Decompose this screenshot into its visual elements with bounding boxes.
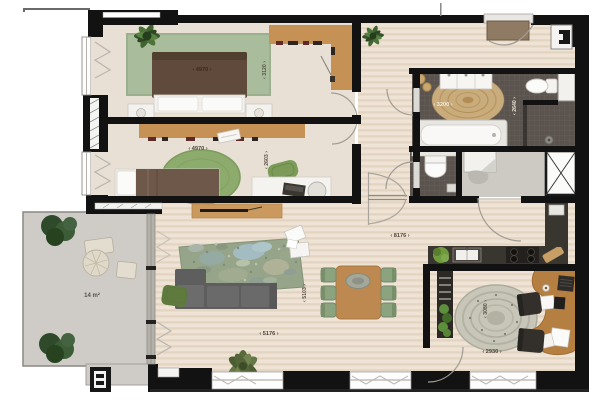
svg-text:14 m²: 14 m²: [84, 292, 100, 299]
svg-text:‹ 3120 ›: ‹ 3120 ›: [262, 61, 268, 79]
svg-text:‹ 5103 ›: ‹ 5103 ›: [302, 284, 308, 302]
svg-text:‹ 2640 ›: ‹ 2640 ›: [512, 97, 518, 115]
svg-text:‹ 4970 ›: ‹ 4970 ›: [192, 67, 211, 73]
svg-text:‹ 5176 ›: ‹ 5176 ›: [259, 331, 278, 337]
svg-text:‹ 8176 ›: ‹ 8176 ›: [390, 233, 409, 239]
svg-text:‹ 3200 ›: ‹ 3200 ›: [433, 102, 452, 108]
svg-text:‹ 2603 ›: ‹ 2603 ›: [264, 151, 270, 169]
svg-text:‹ 3080 ›: ‹ 3080 ›: [483, 300, 489, 318]
svg-text:‹ 4970 ›: ‹ 4970 ›: [188, 146, 207, 152]
svg-text:‹ 2930 ›: ‹ 2930 ›: [482, 349, 501, 355]
